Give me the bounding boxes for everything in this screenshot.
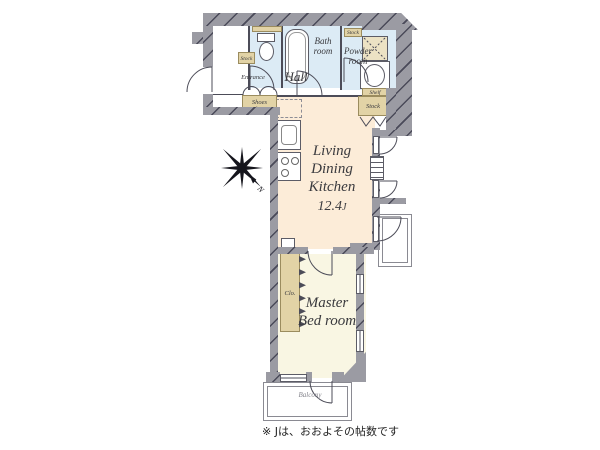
stock-ldk-box: Stock xyxy=(358,96,388,116)
bath-label-line2: room xyxy=(306,46,340,56)
north-label: N xyxy=(255,184,266,195)
ldk-label-line2: Dining xyxy=(300,160,364,178)
burner xyxy=(281,169,289,177)
casement-window-swing xyxy=(380,137,397,154)
burner xyxy=(291,157,299,165)
powder-room-label: Powder room xyxy=(338,46,378,66)
casement-window-swing xyxy=(380,181,397,198)
compass-icon: N xyxy=(221,147,266,195)
wall-segment xyxy=(266,372,280,382)
ldk-label-line3: Kitchen xyxy=(300,178,364,196)
balcony-area xyxy=(263,382,352,421)
stock-entrance-box: Stock xyxy=(238,52,255,64)
wall-segment xyxy=(203,13,362,26)
vanity-sink-icon xyxy=(364,64,385,87)
footnote: ※ Jは、おおよその帖数です xyxy=(262,423,432,439)
wall-segment xyxy=(386,88,396,136)
entrance-label: Entrance xyxy=(236,74,270,81)
ldk-size-unit: J xyxy=(342,202,346,213)
bath-room-label: Bath room xyxy=(306,36,340,56)
kitchen-sink-icon xyxy=(281,125,297,145)
sliding-window xyxy=(280,374,307,382)
stock-top-box: Stock xyxy=(344,28,362,37)
wc-shelf xyxy=(252,26,282,32)
toilet-tank-icon xyxy=(257,33,275,42)
ldk-label-line1: Living xyxy=(300,142,364,160)
toilet-bowl-icon xyxy=(259,42,274,61)
north-arrow xyxy=(247,173,256,180)
wall-segment xyxy=(278,247,308,254)
powder-label-line1: Powder xyxy=(338,46,378,56)
wall-segment xyxy=(203,26,213,67)
entrance-door-swing xyxy=(187,67,212,92)
stock-label: Stock xyxy=(239,56,254,62)
wall-segment xyxy=(213,94,243,95)
wall-segment xyxy=(192,32,203,44)
stove-icon xyxy=(276,152,301,181)
wall-segment xyxy=(356,254,364,274)
ldk-size-value: 12.4 xyxy=(318,199,343,214)
shelf-box: Shelf xyxy=(362,88,388,96)
burner xyxy=(281,157,289,165)
window xyxy=(356,330,364,352)
louver-window xyxy=(370,156,384,180)
window xyxy=(373,136,379,154)
wall-segment xyxy=(378,198,406,204)
hall-label: Hall xyxy=(278,70,314,85)
window xyxy=(373,180,379,198)
wall-segment xyxy=(396,24,412,136)
wall-segment xyxy=(203,107,280,115)
master-bedroom-label: Master Bed room xyxy=(293,294,361,330)
window xyxy=(356,274,364,294)
powder-label-line2: room xyxy=(338,56,378,66)
kitchen-sink-counter xyxy=(276,120,301,150)
master-bedroom-line1: Master xyxy=(293,294,361,312)
wall-segment xyxy=(203,94,213,107)
stock-label: Stock xyxy=(345,30,361,36)
balcony-label: Balcony xyxy=(288,392,332,399)
bath-label-line1: Bath xyxy=(306,36,340,46)
floor-plan: Stock Stock Shoes Closet Shelf Stock Clo… xyxy=(0,0,600,450)
ldk-size: 12.4J xyxy=(300,198,364,217)
wall-segment xyxy=(378,130,406,136)
master-bedroom-line2: Bed room xyxy=(293,312,361,330)
door-opening xyxy=(373,216,379,242)
wall-segment xyxy=(270,115,278,382)
wall-segment xyxy=(333,247,374,254)
side-balcony-area xyxy=(378,214,412,267)
ldk-label: Living Dining Kitchen 12.4J xyxy=(300,142,364,217)
stock-label: Stock xyxy=(359,103,387,110)
